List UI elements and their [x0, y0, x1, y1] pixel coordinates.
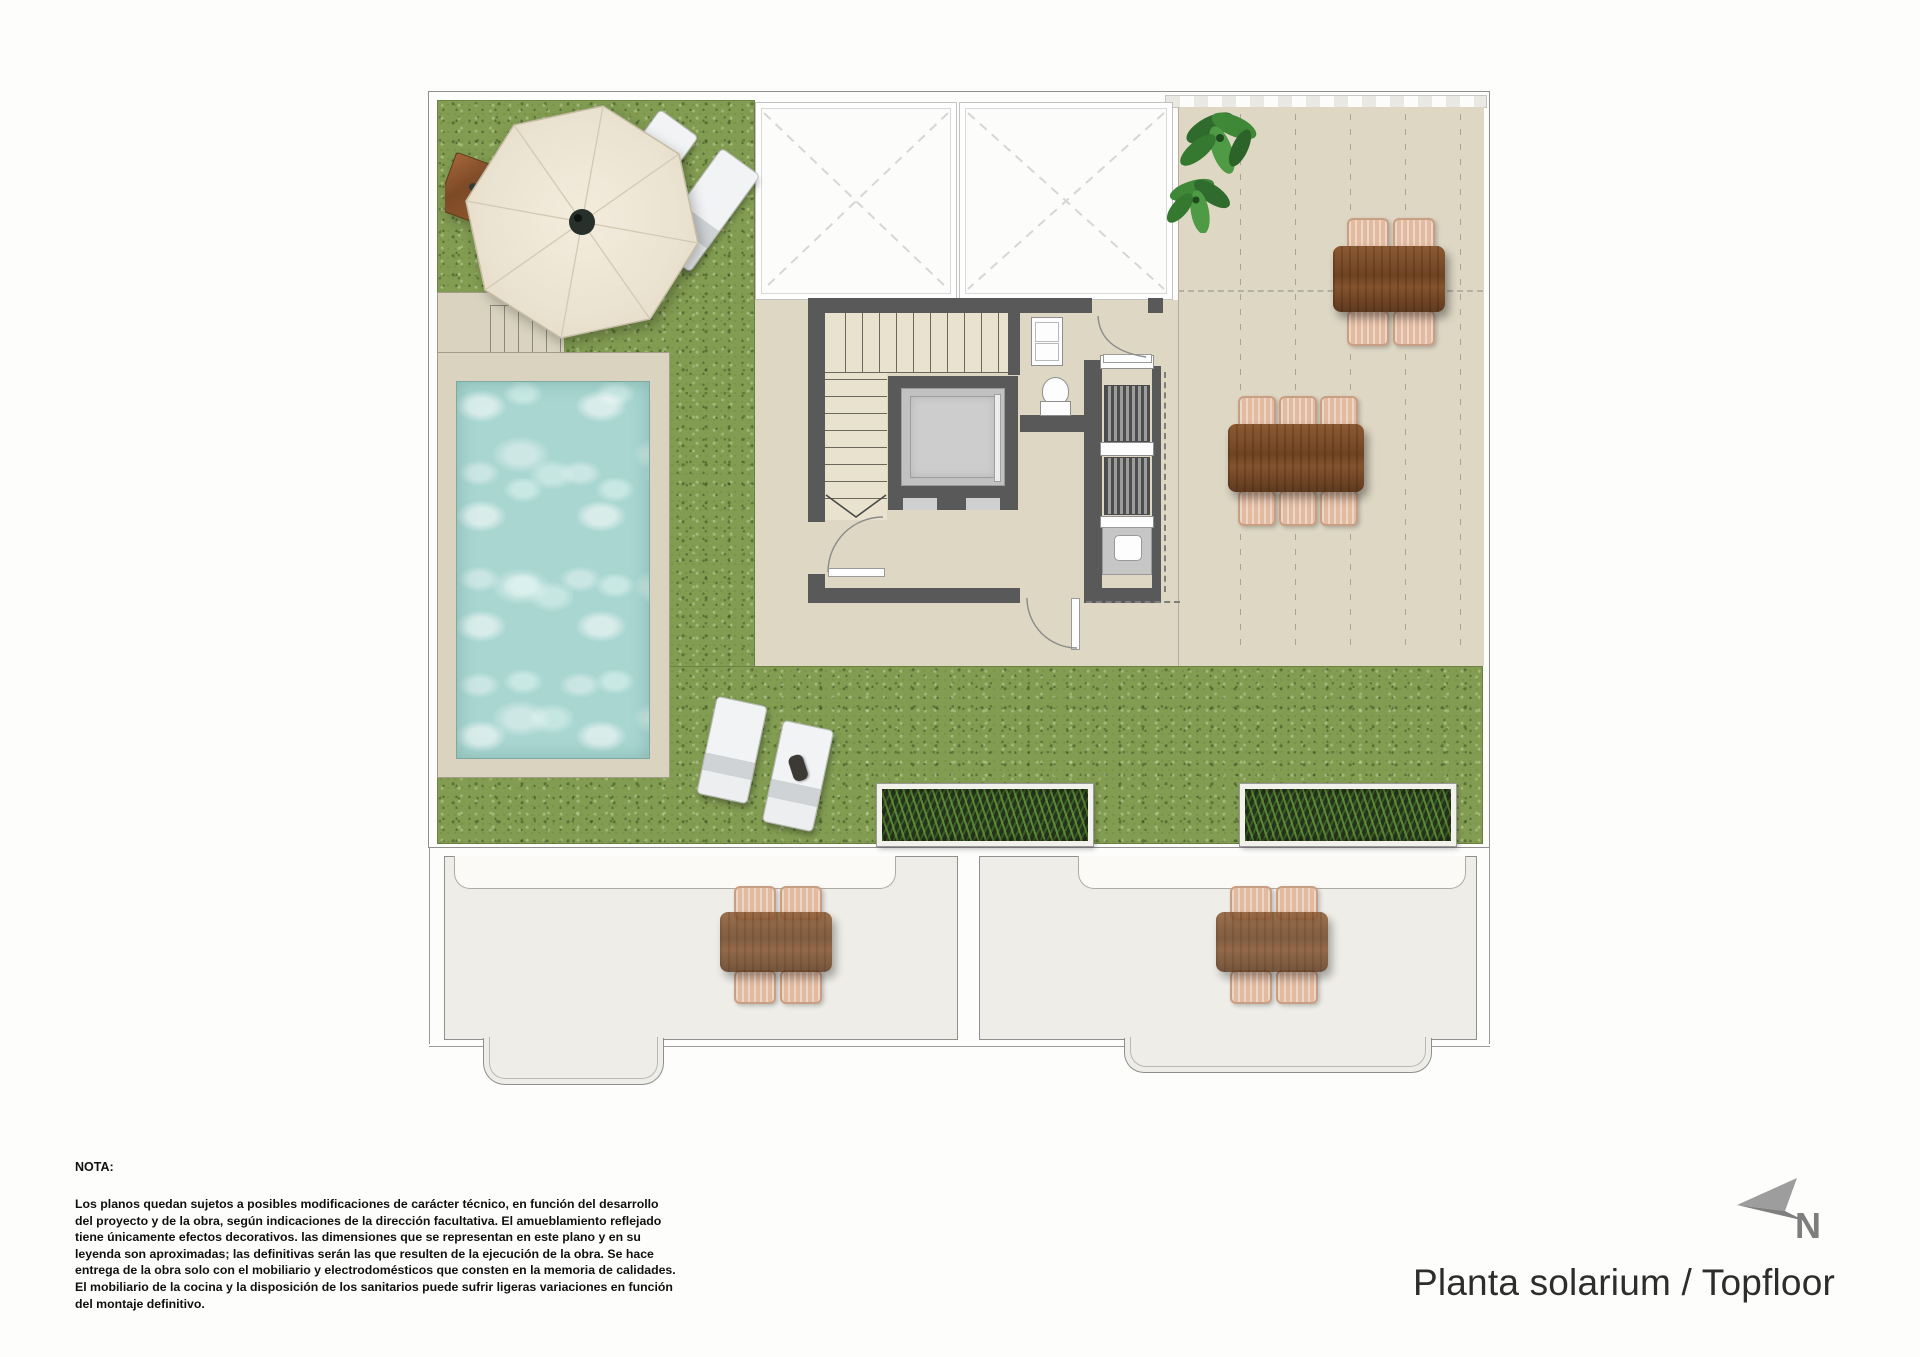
terrace-bump-out [1124, 1038, 1432, 1073]
dining-set-4 [1333, 218, 1445, 342]
void-cross-icon [756, 103, 956, 299]
note-line: leyenda son aproximadas; las definitivas… [75, 1246, 676, 1263]
note-line: tiene únicamente efectos decorativos. la… [75, 1229, 676, 1246]
void-skylight-right [959, 102, 1173, 300]
chair [734, 970, 776, 1004]
chair [1320, 490, 1358, 526]
note-block: NOTA: Los planos quedan sujetos a posibl… [75, 1160, 676, 1312]
lower-terrace-inset [1078, 856, 1466, 889]
void-skylight-left [755, 102, 957, 300]
outline-segment [1489, 848, 1490, 1044]
lower-terrace-inset [454, 856, 896, 889]
towel-item [787, 753, 809, 782]
chair [1276, 970, 1318, 1004]
note-line: El mobiliario de la cocina y la disposic… [75, 1279, 676, 1296]
north-label: N [1795, 1208, 1821, 1244]
floor-plan-canvas: NOTA: Los planos quedan sujetos a posibl… [0, 0, 1920, 1357]
outline-segment [662, 1046, 1124, 1047]
chair [1230, 970, 1272, 1004]
chair [1238, 490, 1276, 526]
note-line: del montaje definitivo. [75, 1296, 676, 1313]
dining-table [1333, 246, 1445, 312]
door-swings [790, 290, 1190, 670]
grass-planter [877, 784, 1093, 846]
dining-table [1216, 912, 1328, 972]
note-heading: NOTA: [75, 1160, 676, 1174]
void-cross-icon [960, 103, 1172, 299]
chair [1279, 490, 1317, 526]
note-line: Los planos quedan sujetos a posibles mod… [75, 1196, 676, 1213]
lower-dining-set [720, 886, 832, 1000]
dining-table [720, 912, 832, 972]
dining-set-6 [1228, 396, 1364, 522]
chair [780, 970, 822, 1004]
outline-segment [1430, 1046, 1490, 1047]
outline-segment [429, 848, 430, 1044]
parasol-icon [445, 85, 735, 375]
potted-plant-icon [1162, 98, 1297, 233]
note-line: entrega de la obra solo con el mobiliari… [75, 1262, 676, 1279]
chair [1393, 310, 1435, 346]
note-line: del proyecto y de la obra, según indicac… [75, 1213, 676, 1230]
lower-dining-set [1216, 886, 1328, 1000]
grass-planter [1240, 784, 1456, 846]
outline-segment [429, 1046, 485, 1047]
plan-title: Planta solarium / Topfloor [1370, 1262, 1835, 1304]
chair [1347, 310, 1389, 346]
pool-water [456, 381, 650, 759]
terrace-bump-out [483, 1038, 664, 1085]
dining-table [1228, 424, 1364, 492]
